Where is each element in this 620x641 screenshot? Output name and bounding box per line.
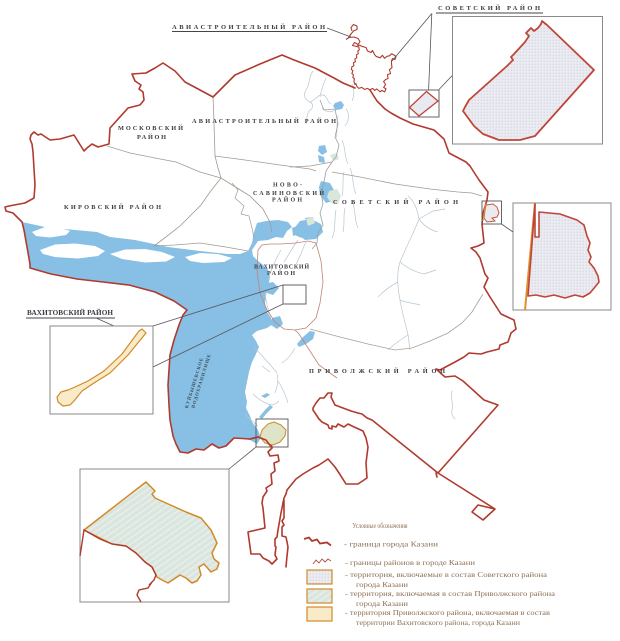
svg-text:ПРИВОЛЖСКИЙ РАЙОН: ПРИВОЛЖСКИЙ РАЙОН: [309, 367, 445, 375]
svg-text:ВАХИТОВСКИЙ РАЙОН: ВАХИТОВСКИЙ РАЙОН: [27, 308, 113, 317]
svg-text:АВИАСТРОИТЕЛЬНЫЙ РАЙОН: АВИАСТРОИТЕЛЬНЫЙ РАЙОН: [192, 117, 336, 125]
svg-text:РАЙОН: РАЙОН: [137, 133, 166, 141]
svg-text:КИРОВСКИЙ РАЙОН: КИРОВСКИЙ РАЙОН: [64, 203, 161, 211]
svg-text:НОВО-: НОВО-: [273, 183, 302, 189]
svg-text:РАЙОН: РАЙОН: [272, 196, 302, 204]
svg-text:- территория Приволжского райо: - территория Приволжского района, включа…: [345, 609, 551, 617]
svg-text:СОВЕТСКИЙ РАЙОН: СОВЕТСКИЙ РАЙОН: [333, 198, 458, 206]
svg-text:- территория, включаемые в сос: - территория, включаемые в состав Советс…: [345, 571, 548, 579]
svg-text:- граница города Казани: - граница города Казани: [344, 541, 438, 549]
svg-text:СОВЕТСКИЙ РАЙОН: СОВЕТСКИЙ РАЙОН: [438, 4, 540, 12]
svg-text:- границы районов в городе Каз: - границы районов в городе Казани: [345, 559, 475, 567]
svg-text:ВАХИТОВСКИЙ: ВАХИТОВСКИЙ: [254, 263, 309, 271]
svg-text:Условные обозначения: Условные обозначения: [353, 521, 408, 530]
svg-text:территории Вахитовского района: территории Вахитовского района, города К…: [356, 619, 520, 627]
svg-text:города Казани: города Казани: [356, 581, 408, 589]
svg-text:- территория, включаемая в сос: - территория, включаемая в состав Привол…: [345, 590, 556, 598]
svg-text:РАЙОН: РАЙОН: [267, 269, 295, 277]
svg-text:города Казани: города Казани: [356, 600, 408, 608]
